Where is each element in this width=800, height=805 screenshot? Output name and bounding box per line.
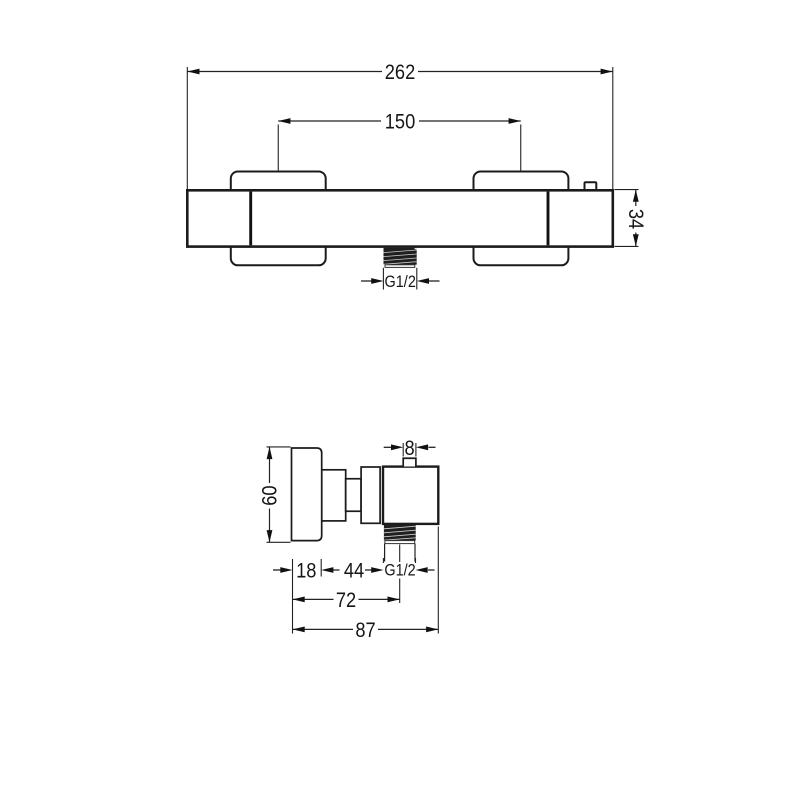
svg-text:262: 262 [385, 61, 415, 85]
svg-text:150: 150 [385, 110, 415, 134]
svg-text:G1/2: G1/2 [384, 561, 415, 579]
svg-text:60: 60 [258, 485, 282, 505]
svg-text:G1/2: G1/2 [385, 273, 416, 291]
svg-text:87: 87 [355, 619, 375, 643]
svg-text:18: 18 [296, 559, 316, 583]
svg-text:72: 72 [336, 589, 356, 613]
svg-text:8: 8 [405, 437, 415, 461]
svg-text:34: 34 [624, 209, 648, 229]
svg-text:44: 44 [344, 559, 364, 583]
